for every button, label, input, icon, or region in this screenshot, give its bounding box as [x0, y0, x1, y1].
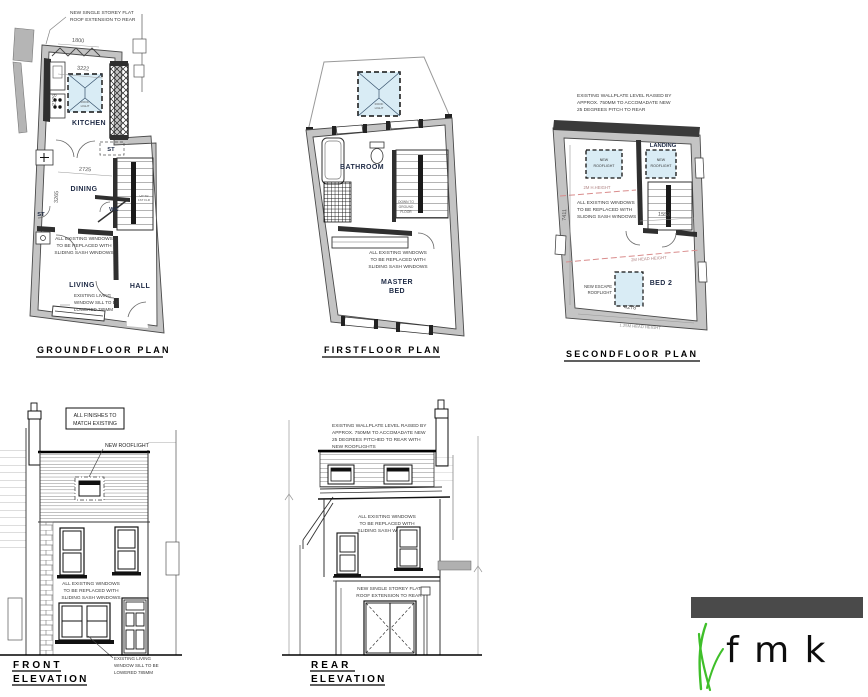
fe-neighbour-window	[8, 598, 22, 640]
ff-partition-wall	[338, 226, 412, 236]
ff-tiled-area	[324, 182, 351, 222]
door-arc	[56, 140, 74, 157]
sf-escape-label: ROOFLIGHT	[588, 290, 613, 295]
room-label-st: ST	[107, 147, 115, 153]
room-label-st2: ST	[37, 212, 45, 218]
door-arc	[662, 233, 676, 247]
gf-title: GROUNDFLOOR PLAN	[37, 345, 171, 355]
fe-upper-window	[112, 527, 141, 576]
re-extension-note: NEW SINGLE STOREY FLAT	[357, 586, 421, 592]
dim-4278: 4278	[624, 305, 637, 312]
gf-sill-note: EXISTING LIVING	[74, 293, 112, 298]
sf-windows-note: ALL EXISTING WINDOWS	[577, 200, 635, 206]
fe-right-neighbour	[148, 437, 176, 450]
ff-windows-note: ALL EXISTING WINDOWS	[369, 250, 427, 256]
ff-stair-label: FLOOR	[400, 210, 412, 214]
door-arc	[626, 231, 640, 245]
gf-windows-note: ALL EXISTING WINDOWS	[55, 236, 113, 242]
re-windows-note: ALL EXISTING WINDOWS	[358, 514, 416, 520]
room-label-landing: LANDING	[650, 143, 677, 149]
ff-window	[399, 323, 430, 334]
sf-windows-note: TO BE REPLACED WITH	[577, 207, 633, 213]
logo-bar	[691, 597, 863, 618]
dim-1800: 1800	[72, 38, 85, 45]
window-jamb	[363, 124, 367, 133]
first-floor-plan: ROOF LIGHT	[306, 57, 464, 357]
re-gutter	[318, 497, 450, 499]
ff-stair-label: GROUND	[399, 205, 414, 209]
fe-rooflight-note: NEW ROOFLIGHT	[105, 443, 150, 449]
window-jamb	[396, 322, 400, 332]
room-label-master-bed: MASTER	[381, 279, 413, 286]
dim-7411: 7411	[562, 209, 568, 221]
sf-rooflight-left: NEW ROOFLIGHT	[586, 150, 622, 178]
ff-stair-wall	[392, 150, 396, 222]
fe-upper-window	[57, 528, 87, 579]
sf-stairs	[648, 182, 692, 230]
neighbour-wall-strip	[13, 62, 27, 133]
re-window	[334, 533, 361, 577]
re-right-neighbour	[434, 455, 453, 485]
sf-escape-rooflight	[615, 272, 643, 306]
ff-rooflight: ROOF LIGHT	[358, 72, 400, 116]
sf-window	[555, 235, 566, 255]
sf-partition-wall	[636, 140, 643, 225]
drawing-svg: ROOF LIGHT	[0, 0, 868, 697]
fe-neighbour-window	[166, 542, 179, 575]
sf-escape-label: NEW ESCAPE	[584, 284, 612, 289]
re-rooflight	[384, 465, 412, 484]
fe-windows-note: TO BE REPLACED WITH	[63, 588, 119, 594]
re-extension-note: ROOF EXTENSION TO REAR	[356, 593, 422, 599]
re-wallplate-note: APPROX. 750MM TO ACCOMADATE NEW	[332, 430, 426, 436]
fe-left-neighbour	[0, 446, 26, 554]
fe-brick-quoin	[40, 522, 53, 655]
boundary-detail	[133, 39, 146, 53]
re-rooflight	[328, 465, 354, 484]
dim-2725: 2725	[79, 167, 92, 174]
window-jamb	[332, 126, 336, 135]
sf-window	[695, 158, 704, 178]
hob-burner	[58, 105, 61, 108]
head-height-line	[560, 190, 636, 196]
re-neighbour-roof	[303, 497, 333, 549]
hob-burner	[58, 98, 61, 101]
window-jamb	[419, 119, 423, 128]
dim-2178: 2178	[52, 94, 59, 107]
dim-3265: 3265	[54, 191, 61, 204]
room-label-bed2: BED 2	[650, 280, 673, 287]
rooflight-label: ROOFLIGHT	[651, 164, 673, 168]
sf-title: SECONDFLOOR PLAN	[566, 349, 698, 359]
re-title: ELEVATION	[311, 674, 387, 685]
rooflight-label: NEW	[600, 158, 609, 162]
gf-stair-wall	[113, 158, 117, 228]
ff-title: FIRSTFLOOR PLAN	[324, 345, 442, 355]
gf-sill-note: LOWERED 785MM	[74, 307, 113, 312]
logo-text: f m k	[726, 630, 827, 671]
fe-windows-note: ALL EXISTING WINDOWS	[62, 581, 120, 587]
ff-stair-label: DOWN TO	[398, 200, 414, 204]
window-jamb	[386, 121, 390, 130]
sf-wallplate-note: 25 DEGREES PITCH TO REAR	[577, 107, 646, 113]
re-window	[394, 527, 423, 571]
fe-living-window	[55, 603, 114, 644]
ff-windows-note: SLIDING SASH WINDOWS	[368, 264, 427, 270]
fe-title: FRONT	[13, 660, 62, 671]
room-label-kitchen: KITCHEN	[72, 120, 106, 127]
head-height-label: 2M H.HEIGHT	[584, 185, 611, 190]
head-height-label: 2M HEAD HEIGHT	[631, 255, 667, 263]
fmk-logo: f m k	[691, 597, 863, 690]
door-arc	[77, 141, 95, 158]
gf-front-door-opening	[126, 316, 148, 328]
fe-finishes-note: MATCH EXISTING	[73, 421, 117, 427]
rooflight-label: ROOFLIGHT	[594, 164, 616, 168]
grass-icon	[699, 624, 723, 690]
rooflight-label: NEW	[657, 158, 666, 162]
window-jamb	[341, 316, 345, 326]
room-label-bathroom: BATHROOM	[340, 164, 384, 171]
fe-rooflight	[75, 477, 104, 500]
room-label-wc: WC	[109, 207, 119, 213]
leader-line	[46, 17, 66, 44]
dim-1553: 1553	[658, 212, 671, 219]
neighbour-wall-block	[13, 28, 34, 62]
fe-chimney	[28, 403, 41, 465]
fe-sill-note: WINDOW SILL TO BE	[114, 663, 159, 668]
sf-window	[698, 262, 707, 282]
gf-cupboard	[36, 232, 50, 244]
gf-windows-note: TO BE REPLACED WITH	[56, 243, 112, 249]
fe-sill-note: EXISTING LIVING	[114, 656, 152, 661]
architectural-drawing-sheet: ROOF LIGHT	[0, 0, 868, 697]
ff-toilet-cistern	[370, 142, 384, 148]
gf-hatched-wall	[110, 64, 128, 138]
room-label-dining: DINING	[71, 186, 98, 193]
ff-window	[336, 125, 363, 134]
re-windows-note: TO BE REPLACED WITH	[359, 521, 415, 527]
gf-wall-cap	[110, 135, 128, 140]
gf-extension-note: ROOF EXTENSION TO REAR	[70, 17, 136, 23]
fe-sill-note: LOWERED 785MM	[114, 670, 153, 675]
ff-toilet	[371, 149, 383, 164]
re-wallplate-note: EXISTING WALLPLATE LEVEL RAISED BY	[332, 423, 427, 429]
sf-wallplate-note: APPROX. 750MM TO ACCOMADATE NEW	[577, 100, 671, 106]
boundary-detail	[134, 65, 144, 77]
rear-elevation: EXISTING WALLPLATE LEVEL RAISED BY APPRO…	[282, 400, 482, 685]
fe-windows-note: SLIDING SASH WINDOWS	[61, 595, 120, 601]
re-french-doors	[364, 601, 416, 655]
re-fascia	[320, 491, 442, 493]
gf-door-opening	[112, 280, 120, 298]
gf-stair-label: 1ST FLR	[138, 198, 151, 202]
re-wallplate-note: 25 DEGREES PITCHED TO REAR WITH	[332, 437, 421, 443]
gf-wall-cap	[110, 61, 128, 66]
fe-finishes-note: ALL FINISHES TO	[74, 413, 117, 419]
rooflight-label: LIGHT	[81, 104, 90, 108]
ff-windows-note: TO BE REPLACED WITH	[370, 257, 426, 263]
gf-windows-note: SLIDING SASH WINDOWS	[54, 250, 113, 256]
sf-windows-note: SLIDING SASH WINDOWS	[577, 214, 636, 220]
ff-wardrobe	[332, 237, 408, 248]
window-jamb	[374, 319, 378, 329]
window-jamb	[429, 325, 433, 335]
ground-floor-plan: ROOF LIGHT	[13, 10, 171, 357]
second-floor-plan: NEW ROOFLIGHT NEW ROOFLIGHT EXISTING WAL…	[553, 93, 707, 361]
dim-3222: 3222	[77, 65, 90, 72]
gf-rooflight: ROOF LIGHT	[68, 74, 102, 112]
re-wallplate-note: NEW ROOFLIGHTS	[332, 444, 376, 450]
room-label-hall: HALL	[130, 283, 151, 290]
room-label-living: LIVING	[69, 282, 95, 289]
door-arc	[418, 233, 434, 249]
rooflight-label: LIGHT	[375, 106, 384, 110]
ff-window	[390, 120, 419, 129]
front-elevation: ALL FINISHES TO MATCH EXISTING NEW ROOFL…	[0, 403, 182, 685]
gf-sill-note: WINDOW SILL TO BE	[74, 300, 119, 305]
fe-title: ELEVATION	[13, 674, 89, 685]
gf-extension-note: NEW SINGLE STOREY FLAT	[70, 10, 134, 16]
re-title: REAR	[311, 660, 351, 671]
room-label-master-bed: BED	[389, 288, 405, 295]
sf-wallplate-note: EXISTING WALLPLATE LEVEL RAISED BY	[577, 93, 672, 99]
sf-rooflight-right: NEW ROOFLIGHT	[646, 150, 676, 178]
door-arc	[128, 302, 146, 317]
fe-front-door	[122, 598, 148, 655]
re-flat-roof-slab	[438, 561, 471, 570]
